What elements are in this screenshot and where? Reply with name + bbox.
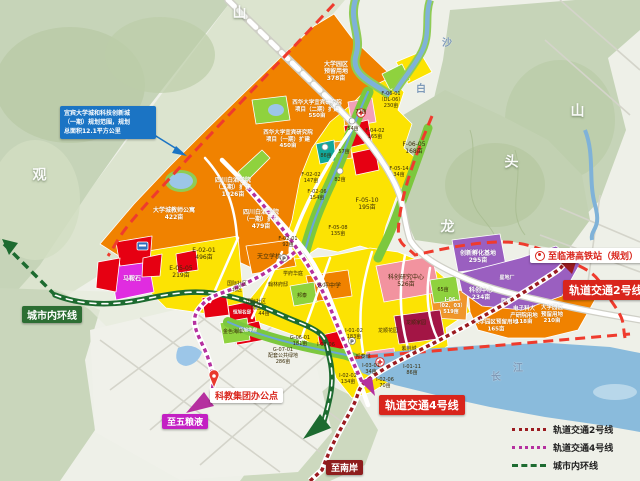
- line4-sample-icon: [512, 446, 546, 449]
- to-nanan-label: 至南岸: [326, 460, 363, 475]
- legend-line4-label: 轨道交通4号线: [553, 441, 613, 454]
- to-hsr-station-text: 至临港高铁站（规划）: [548, 249, 638, 262]
- hospital-icon: [357, 109, 365, 117]
- planning-scope-callout: 宜宾大学城和科技创新城 （一期）规划范围，规划 总面积12.1平方公里: [60, 106, 156, 139]
- legend-ring-label: 城市内环线: [553, 459, 598, 472]
- bus-station-icon: [137, 242, 148, 250]
- svg-text:P: P: [350, 339, 354, 345]
- ring-sample-icon: [512, 464, 546, 467]
- station-icon: [535, 251, 545, 261]
- planning-map: P P 山观山头龙沙白长江大学园区 预留用地 378亩西华大学宜宾研究院 项目（…: [0, 0, 640, 481]
- hospital-icon: [376, 358, 384, 366]
- line2-sample-icon: [512, 428, 546, 431]
- legend: 轨道交通2号线 轨道交通4号线 城市内环线: [512, 420, 638, 474]
- legend-row-line4: 轨道交通4号线: [512, 438, 638, 456]
- inner-ring-label: 城市内环线: [22, 306, 82, 323]
- legend-row-ring: 城市内环线: [512, 456, 638, 474]
- to-hsr-station-label: 至临港高铁站（规划）: [530, 248, 640, 263]
- map-canvas: P P: [0, 0, 640, 481]
- rail-line2-label: 轨道交通2号线: [563, 280, 640, 300]
- to-wuliangye-label: 至五粮液: [162, 414, 208, 429]
- svg-text:P: P: [282, 256, 286, 262]
- rail-line4-label: 轨道交通4号线: [379, 395, 465, 415]
- legend-row-line2: 轨道交通2号线: [512, 420, 638, 438]
- legend-line2-label: 轨道交通2号线: [553, 423, 613, 436]
- keji-office-label: 科教集团办公点: [210, 388, 283, 403]
